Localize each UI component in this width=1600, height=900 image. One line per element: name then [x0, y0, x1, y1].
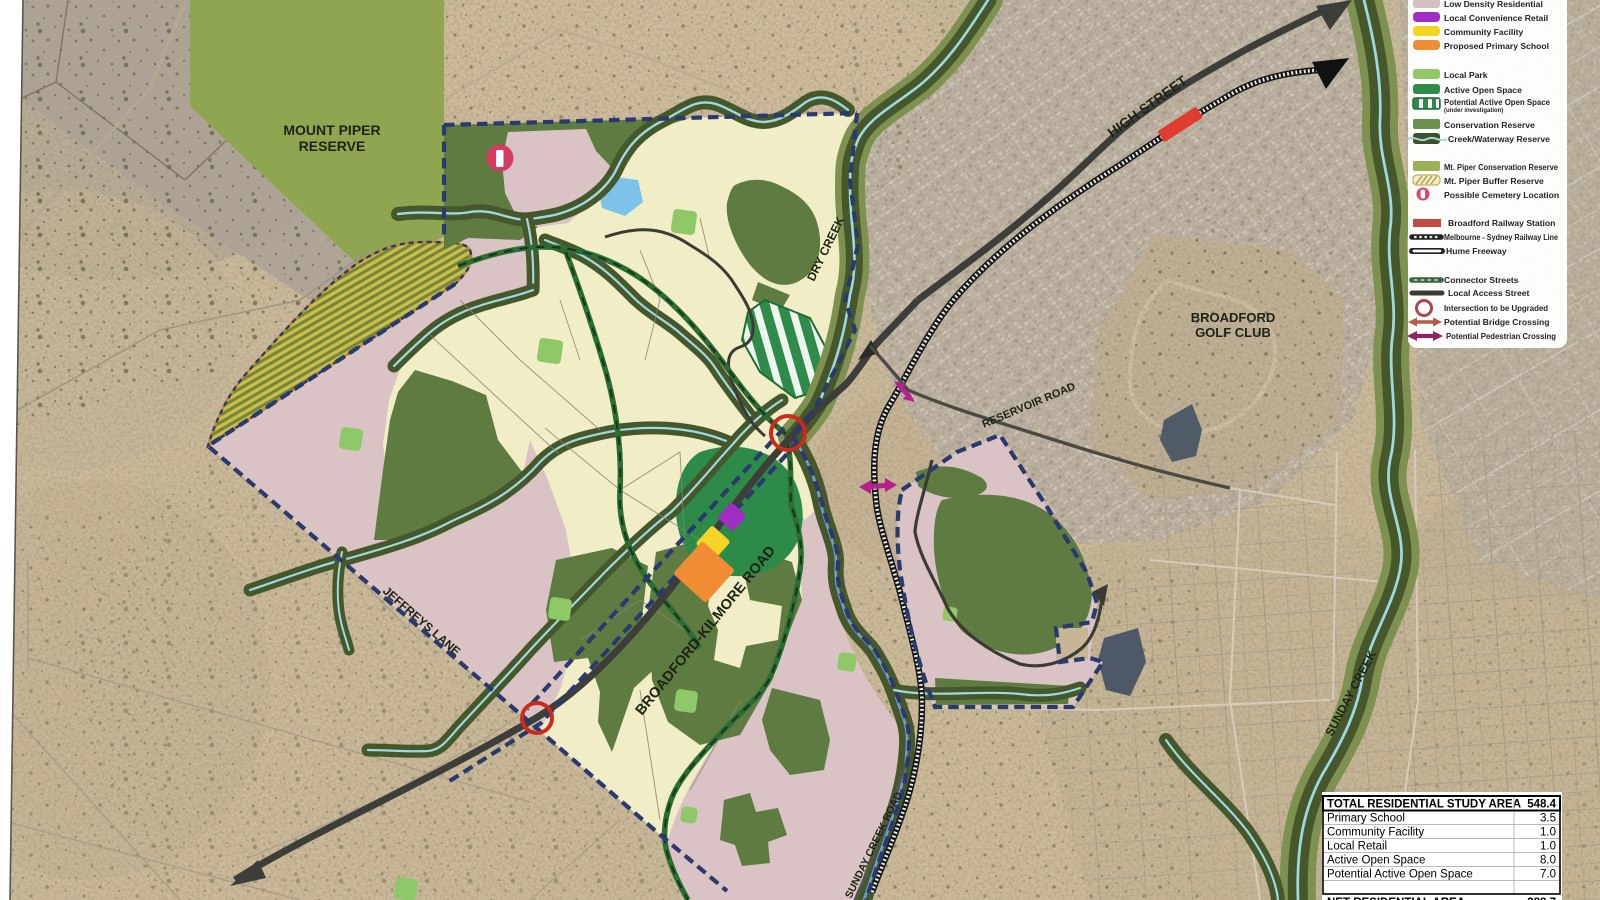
svg-text:Creek/Waterway Reserve: Creek/Waterway Reserve	[1448, 134, 1550, 144]
svg-text:Potential Pedestrian Crossing: Potential Pedestrian Crossing	[1446, 331, 1556, 341]
svg-text:Local Convenience Retail: Local Convenience Retail	[1444, 13, 1548, 23]
svg-text:Local Retail: Local Retail	[1327, 841, 1387, 853]
svg-text:Active Open Space: Active Open Space	[1444, 85, 1522, 95]
svg-text:(under investigation): (under investigation)	[1444, 108, 1503, 114]
svg-text:Conservation Reserve: Conservation Reserve	[1444, 120, 1535, 130]
svg-text:Proposed Primary School: Proposed Primary School	[1444, 41, 1549, 51]
svg-text:Broadford Railway Station: Broadford Railway Station	[1448, 218, 1555, 228]
svg-text:Mt. Piper Buffer Reserve: Mt. Piper Buffer Reserve	[1444, 176, 1544, 186]
svg-text:3.5: 3.5	[1540, 813, 1556, 825]
svg-text:Community Facility: Community Facility	[1327, 827, 1424, 839]
svg-text:548.4: 548.4	[1527, 799, 1556, 811]
svg-text:Potential Active Open Space: Potential Active Open Space	[1327, 869, 1473, 881]
svg-text:1.0: 1.0	[1540, 827, 1556, 839]
svg-text:MOUNT PIPER: MOUNT PIPER	[283, 122, 380, 138]
svg-text:TOTAL RESIDENTIAL STUDY AREA: TOTAL RESIDENTIAL STUDY AREA	[1327, 799, 1521, 811]
svg-text:GOLF CLUB: GOLF CLUB	[1195, 325, 1271, 340]
svg-text:Local Park: Local Park	[1444, 70, 1488, 80]
svg-text:Potential Active Open Space: Potential Active Open Space	[1444, 97, 1550, 107]
svg-text:BROADFORD: BROADFORD	[1191, 310, 1276, 325]
svg-text:Community Facility: Community Facility	[1444, 27, 1523, 37]
svg-text:Mt. Piper Conservation Reserve: Mt. Piper Conservation Reserve	[1444, 162, 1558, 172]
svg-text:8.0: 8.0	[1540, 855, 1556, 867]
svg-text:1.0: 1.0	[1540, 841, 1556, 853]
svg-text:Melbourne - Sydney Railway Lin: Melbourne - Sydney Railway Line	[1444, 232, 1558, 242]
svg-text:7.0: 7.0	[1540, 869, 1556, 881]
svg-text:Primary School: Primary School	[1327, 813, 1405, 825]
svg-text:Local Access Street: Local Access Street	[1448, 288, 1530, 298]
svg-text:Hume Freeway: Hume Freeway	[1446, 246, 1507, 256]
svg-text:Low Density Residential: Low Density Residential	[1444, 0, 1543, 9]
svg-text:RESERVE: RESERVE	[299, 138, 366, 154]
svg-text:Possible Cemetery Location: Possible Cemetery Location	[1444, 190, 1559, 200]
svg-text:Active Open Space: Active Open Space	[1327, 855, 1425, 867]
svg-text:Connector Streets: Connector Streets	[1444, 275, 1519, 285]
svg-text:Intersection to be Upgraded: Intersection to be Upgraded	[1444, 303, 1548, 313]
svg-text:Potential Bridge Crossing: Potential Bridge Crossing	[1444, 317, 1550, 327]
